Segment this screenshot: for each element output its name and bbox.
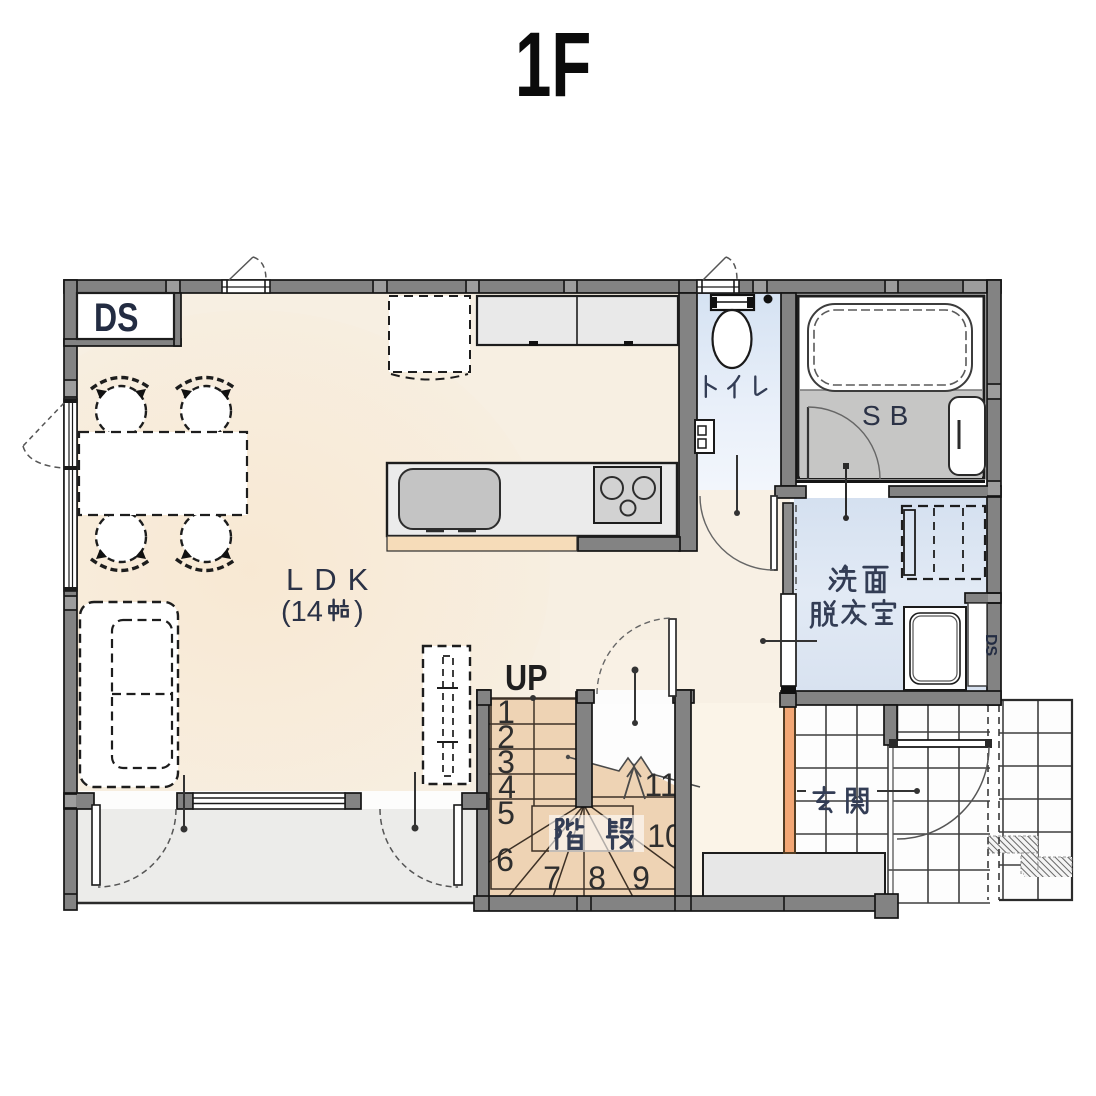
svg-text:11: 11	[644, 767, 677, 803]
svg-text:UP: UP	[505, 659, 547, 699]
svg-text:(14: (14	[281, 596, 323, 628]
svg-text:6: 6	[496, 842, 514, 878]
svg-text:SB: SB	[862, 400, 917, 431]
svg-text:DS: DS	[982, 634, 999, 657]
svg-text:): )	[354, 596, 364, 628]
svg-text:8: 8	[588, 860, 606, 896]
svg-text:7: 7	[543, 860, 561, 896]
svg-text:5: 5	[497, 795, 515, 831]
svg-text:DS: DS	[94, 295, 138, 340]
svg-text:9: 9	[632, 860, 650, 896]
svg-text:LDK: LDK	[286, 562, 379, 597]
svg-text:1F: 1F	[515, 13, 591, 116]
